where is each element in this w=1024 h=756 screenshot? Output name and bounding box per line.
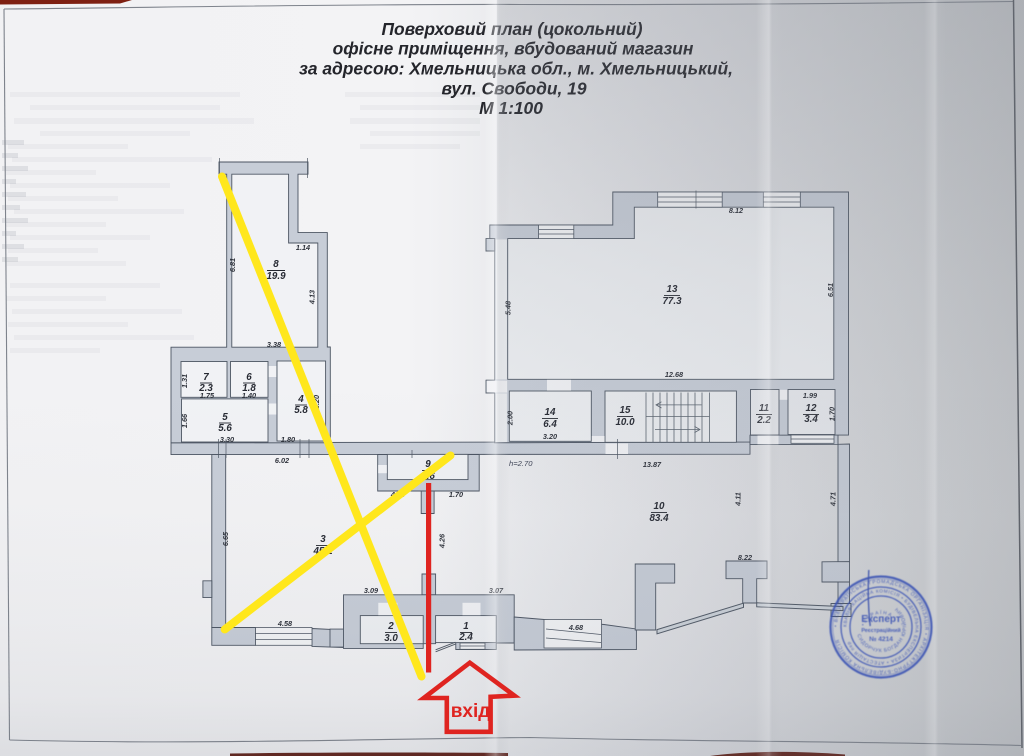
- svg-text:8: 8: [273, 259, 279, 270]
- svg-text:Реєстраційний: Реєстраційний: [861, 627, 900, 634]
- svg-text:Експерт: Експерт: [861, 614, 901, 625]
- svg-text:вхід: вхід: [451, 701, 491, 722]
- svg-text:4.13: 4.13: [308, 290, 317, 305]
- svg-text:3.38: 3.38: [267, 340, 282, 349]
- svg-text:19.9: 19.9: [266, 271, 286, 282]
- svg-text:6.81: 6.81: [228, 258, 237, 272]
- svg-text:1.14: 1.14: [296, 243, 310, 252]
- svg-text:№ 4214: № 4214: [869, 636, 893, 643]
